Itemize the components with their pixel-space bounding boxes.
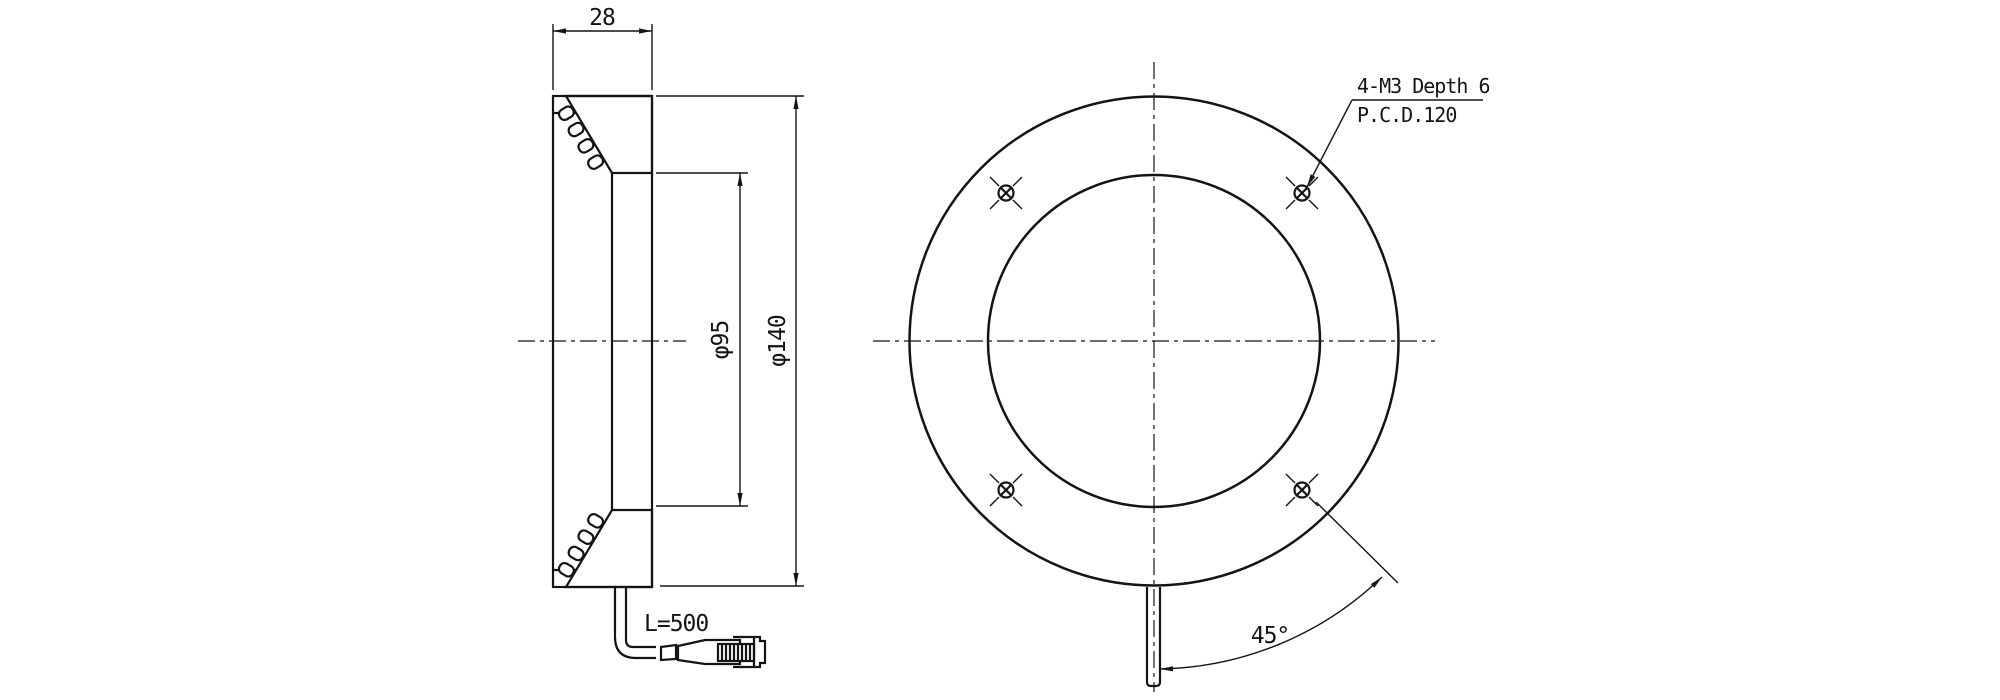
arrowhead-bottom xyxy=(793,573,798,586)
arrowhead-bottom xyxy=(737,493,742,506)
side-view: L=500 28 φ95 φ140 xyxy=(518,5,804,667)
cable-length-label: L=500 xyxy=(644,611,708,637)
outer-diameter-label: φ140 xyxy=(765,315,791,367)
mounting-hole-bottom-left xyxy=(990,474,1022,506)
cable-assembly: L=500 xyxy=(615,587,765,667)
led-symbols-top xyxy=(557,105,605,171)
arrowhead-top xyxy=(793,96,798,109)
mounting-hole-top-right xyxy=(1286,177,1318,209)
cable-connector xyxy=(678,637,765,667)
led-symbols-bottom xyxy=(557,512,605,578)
inner-diameter-label: φ95 xyxy=(708,321,734,360)
angle-dim-label: 45° xyxy=(1251,623,1290,649)
technical-drawing: L=500 28 φ95 φ140 xyxy=(0,0,2000,700)
arrowhead-right xyxy=(639,28,652,33)
bottom-led-block xyxy=(553,510,652,587)
connector-crimp xyxy=(718,644,754,661)
mounting-note-line1: 4-M3 Depth 6 xyxy=(1357,74,1490,98)
arrowhead-left xyxy=(553,28,566,33)
drawing-canvas: L=500 28 φ95 φ140 xyxy=(0,0,2000,700)
dimension-inner-diameter: φ95 xyxy=(656,173,748,506)
front-view: 4-M3 Depth 6 P.C.D.120 45° xyxy=(873,62,1490,692)
cable-stub xyxy=(661,645,676,660)
mounting-hole-bottom-right xyxy=(1286,474,1318,506)
mounting-note-line2: P.C.D.120 xyxy=(1357,103,1456,127)
arc-arrowhead-lower xyxy=(1160,666,1173,671)
top-led-block xyxy=(553,96,652,173)
arrowhead-top xyxy=(737,173,742,186)
dimension-angle: 45° xyxy=(1160,502,1398,671)
radial-extension-line xyxy=(1316,502,1398,583)
mounting-note: 4-M3 Depth 6 P.C.D.120 xyxy=(1307,74,1490,187)
width-dim-label: 28 xyxy=(589,5,615,31)
leader-line xyxy=(1307,100,1352,187)
dimension-width: 28 xyxy=(553,5,652,90)
mounting-hole-top-left xyxy=(990,177,1022,209)
